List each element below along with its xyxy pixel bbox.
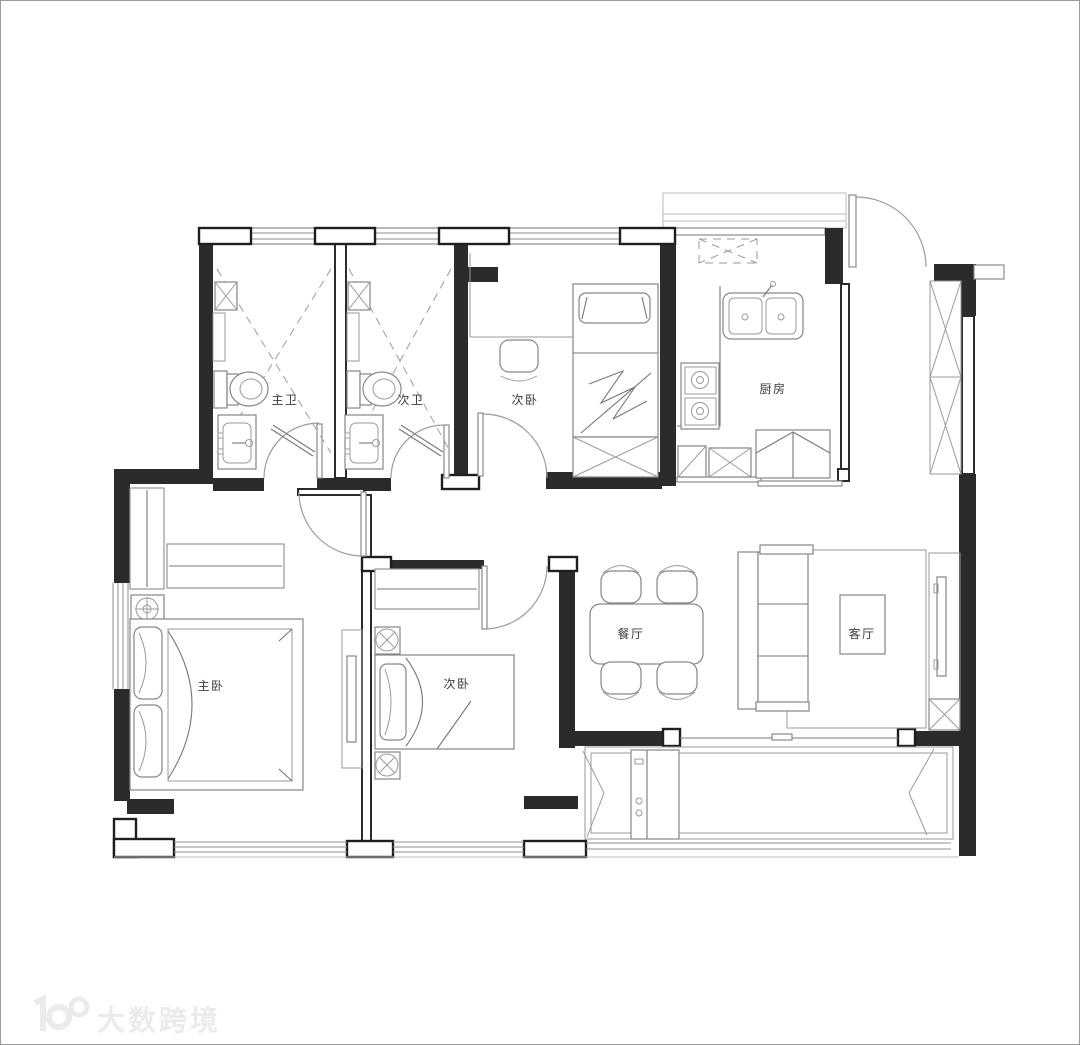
shower-panel <box>213 313 225 361</box>
column-box <box>929 699 960 730</box>
floor-drain-icon <box>348 282 370 310</box>
stove <box>681 363 719 429</box>
bed <box>375 655 514 749</box>
wardrobe-left <box>130 488 164 589</box>
nightstand-lamp <box>375 752 400 779</box>
room-master-bath: 主卫 <box>213 269 331 469</box>
room-living: 客厅 <box>738 545 960 730</box>
floor-plan-page: 主卫 次卫 <box>0 0 1080 1045</box>
dining-chair <box>601 662 641 700</box>
watermark: 大数跨境 <box>35 999 221 1036</box>
top-window-band <box>251 228 620 244</box>
base-cabinets <box>678 446 751 477</box>
vanity-sink <box>218 415 256 469</box>
floor-drain-icon <box>215 282 237 310</box>
double-bed <box>130 619 303 790</box>
room-label-living: 客厅 <box>848 626 875 641</box>
desk <box>470 253 573 337</box>
room-label-bedroom-bottom: 次卧 <box>443 677 470 691</box>
balcony-sliding-door <box>680 734 898 740</box>
room-label-master-bath: 主卫 <box>271 393 298 407</box>
toilet <box>214 371 268 408</box>
entry-door <box>849 195 926 267</box>
room-bedroom-bottom: 次卧 <box>375 569 514 779</box>
desk-chair <box>500 340 538 381</box>
door-master-bedroom <box>299 492 366 556</box>
duct-shaft <box>930 281 961 474</box>
left-window <box>113 583 128 689</box>
washing-machine <box>631 750 679 839</box>
room-label-master-bedroom: 主卧 <box>197 679 224 693</box>
shower-panel <box>347 313 359 361</box>
wardrobe <box>375 569 479 609</box>
room-label-second-bath: 次卫 <box>397 393 424 407</box>
dining-chair <box>657 566 697 604</box>
door-bedroom-top <box>478 413 547 478</box>
door-bedroom-bottom <box>482 566 547 629</box>
dining-chair <box>657 662 697 700</box>
wardrobe-top <box>167 544 284 588</box>
vanity-sink <box>345 415 383 469</box>
room-label-kitchen: 厨房 <box>759 381 786 396</box>
room-second-bath: 次卫 <box>345 269 451 469</box>
dining-chair <box>601 566 641 604</box>
sofa <box>738 545 813 711</box>
dresser-tv <box>342 630 362 768</box>
dining-table <box>590 604 703 664</box>
bed-end-chest <box>573 437 658 477</box>
kitchen-sink <box>723 282 803 340</box>
tv-cabinet <box>929 553 960 699</box>
room-bedroom-top: 次卧 <box>470 253 658 477</box>
nightstand-lamp <box>131 595 164 622</box>
room-master-bedroom: 主卧 <box>130 488 362 790</box>
balcony <box>583 747 953 849</box>
room-label-bedroom-top: 次卧 <box>511 393 538 407</box>
kitchen-exterior-ledge <box>663 193 846 235</box>
single-bed <box>573 284 658 437</box>
nightstand-lamp <box>375 627 400 654</box>
coffee-table <box>840 595 885 654</box>
fridge <box>756 430 830 478</box>
floor-plan-drawing: 主卫 次卫 <box>1 1 1080 1045</box>
watermark-logo-icon <box>35 999 87 1031</box>
room-label-dining: 餐厅 <box>617 626 644 641</box>
room-dining: 餐厅 <box>590 566 703 700</box>
flue-cabinet <box>699 239 757 263</box>
room-kitchen: 厨房 <box>677 239 830 478</box>
watermark-text: 大数跨境 <box>97 1005 221 1036</box>
toilet <box>347 371 401 408</box>
